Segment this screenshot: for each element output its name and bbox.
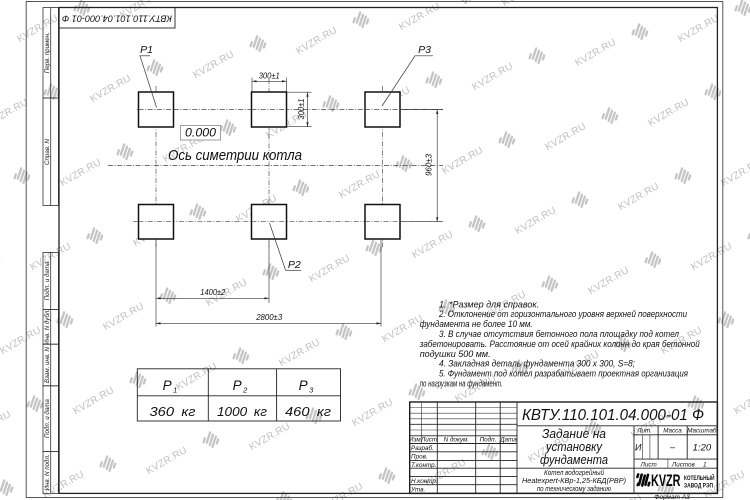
svg-text:KVZR.RU: KVZR.RU (191, 49, 236, 81)
svg-text:Ось симетрии котла: Ось симетрии котла (168, 148, 302, 164)
svg-text:1. *Размер для справок.: 1. *Размер для справок. (439, 299, 539, 309)
svg-text:4. Закладная деталь фундамент: 4. Закладная деталь фундамента 300 x 300… (439, 359, 635, 369)
svg-text:KVZR.RU: KVZR.RU (616, 181, 661, 213)
svg-text:подушки 500 мм.: подушки 500 мм. (420, 349, 491, 359)
svg-text:KVZR.RU: KVZR.RU (380, 313, 425, 345)
svg-text:KVZR.RU: KVZR.RU (144, 445, 189, 477)
svg-text:KVZR.RU: KVZR.RU (513, 205, 558, 237)
svg-text:KVZR.RU: KVZR.RU (410, 229, 455, 261)
svg-text:Т.контр.: Т.контр. (411, 462, 436, 469)
svg-text:фундамента не более 10 мм.: фундамента не более 10 мм. (420, 319, 533, 329)
svg-text:KVZR.RU: KVZR.RU (646, 97, 691, 129)
svg-text:P3: P3 (299, 378, 315, 395)
svg-text:P2: P2 (233, 378, 249, 395)
svg-text:1000 кг: 1000 кг (217, 404, 268, 419)
svg-text:Листов: Листов (671, 461, 696, 468)
svg-text:KVZR.RU: KVZR.RU (277, 337, 322, 369)
svg-text:KVZR.RU: KVZR.RU (58, 157, 103, 189)
svg-text:Heatexpert-КВр-1,25-КБД(РВР): Heatexpert-КВр-1,25-КБД(РВР) (522, 478, 626, 485)
svg-text:КВТУ.110.101.04.000-01 Ф: КВТУ.110.101.04.000-01 Ф (61, 13, 172, 24)
svg-text:KVZR.RU: KVZR.RU (573, 37, 618, 69)
svg-text:Инв. N дубл.: Инв. N дубл. (44, 309, 51, 345)
svg-text:1:20: 1:20 (693, 443, 712, 454)
svg-text:Подп. и дата: Подп. и дата (44, 261, 51, 300)
svg-text:P3: P3 (418, 44, 431, 56)
svg-text:Н.контр.: Н.контр. (411, 478, 438, 485)
svg-text:P1: P1 (140, 44, 153, 56)
svg-text:КВТУ.110.101.04.000-01 Ф: КВТУ.110.101.04.000-01 Ф (522, 407, 704, 424)
svg-text:Формат А3: Формат А3 (654, 494, 690, 500)
svg-text:3. В случае отсутствия бетонн: 3. В случае отсутствия бетонного пола пл… (439, 329, 679, 339)
svg-text:KVZR.RU: KVZR.RU (350, 397, 395, 429)
svg-text:2800±3: 2800±3 (255, 312, 282, 322)
svg-text:KVZR.RU: KVZR.RU (247, 421, 292, 453)
svg-text:KVZR.RU: KVZR.RU (0, 409, 13, 441)
svg-text:Подп.: Подп. (480, 436, 497, 444)
svg-text:KVZR.RU: KVZR.RU (307, 253, 352, 285)
svg-text:Лист: Лист (420, 437, 437, 444)
svg-text:300±1: 300±1 (296, 98, 306, 119)
svg-text:Утв.: Утв. (410, 486, 425, 493)
svg-text:KVZR.RU: KVZR.RU (689, 241, 734, 273)
svg-text:KVZR.RU: KVZR.RU (440, 145, 485, 177)
svg-text:Масса: Масса (663, 428, 682, 435)
svg-text:KVZR.RU: KVZR.RU (101, 301, 146, 333)
svg-text:установку: установку (545, 440, 603, 454)
svg-text:1400±2: 1400±2 (200, 287, 225, 297)
svg-text:фундамента: фундамента (540, 453, 608, 467)
svg-text:KVZR.RU: KVZR.RU (470, 61, 515, 93)
svg-text:забетонировать. Расстояние от: забетонировать. Расстояние от осей крайн… (419, 339, 700, 349)
svg-text:P1: P1 (163, 378, 178, 395)
svg-text:KVZR: KVZR (651, 471, 681, 490)
svg-text:Задание на: Задание на (542, 427, 606, 441)
svg-text:KVZR.RU: KVZR.RU (15, 13, 60, 45)
svg-text:KVZR.RU: KVZR.RU (337, 169, 382, 201)
svg-text:KVZR.RU: KVZR.RU (676, 13, 721, 45)
svg-text:Дата: Дата (499, 437, 517, 444)
svg-text:Справ. N: Справ. N (44, 139, 51, 165)
svg-text:960±3: 960±3 (424, 154, 434, 176)
svg-text:Инв. N подл.: Инв. N подл. (44, 454, 51, 490)
svg-text:KVZR.RU: KVZR.RU (71, 385, 116, 417)
svg-text:2. Отклонение от горизонтальн: 2. Отклонение от горизонтального уровня … (438, 309, 687, 319)
svg-text:KVZR.RU: KVZR.RU (0, 325, 43, 357)
svg-text:KVZR.RU: KVZR.RU (586, 265, 631, 297)
svg-text:300±1: 300±1 (259, 70, 280, 80)
svg-text:Лист: Лист (640, 461, 657, 468)
svg-text:KVZR.RU: KVZR.RU (732, 385, 750, 417)
svg-text:P2: P2 (288, 259, 301, 271)
svg-text:5. Фундамент под котел разраб: 5. Фундамент под котел разрабатывает про… (439, 369, 688, 379)
svg-text:Масштаб: Масштаб (687, 427, 717, 435)
svg-text:KVZR.RU: KVZR.RU (88, 73, 133, 105)
svg-text:Взам. инв. N: Взам. инв. N (44, 346, 51, 383)
svg-text:Перв. примен.: Перв. примен. (44, 32, 51, 73)
svg-text:360 кг: 360 кг (150, 404, 197, 419)
svg-text:460 кг: 460 кг (285, 404, 332, 419)
svg-text:KVZR.RU: KVZR.RU (294, 25, 339, 57)
svg-text:Разраб.: Разраб. (411, 444, 434, 452)
svg-text:KVZR.RU: KVZR.RU (543, 121, 588, 153)
svg-text:по техническому заданию: по техническому заданию (537, 485, 612, 493)
svg-text:N докум.: N докум. (444, 436, 469, 444)
svg-text:KVZR.RU: KVZR.RU (0, 97, 30, 129)
svg-text:0.000: 0.000 (185, 126, 216, 140)
svg-text:КОТЕЛЬНЫЙ: КОТЕЛЬНЫЙ (684, 474, 715, 482)
svg-text:1: 1 (703, 461, 707, 468)
svg-text:ЗАВОД РЭП: ЗАВОД РЭП (684, 484, 713, 490)
svg-text:Котел водогрейный: Котел водогрейный (544, 469, 604, 477)
svg-text:KVZR.RU: KVZR.RU (397, 1, 442, 33)
svg-text:Лит.: Лит. (636, 428, 652, 435)
svg-text:KVZR.RU: KVZR.RU (719, 157, 750, 189)
svg-text:KVZR.RU: KVZR.RU (174, 361, 219, 393)
svg-text:Подп. и дата: Подп. и дата (44, 399, 51, 438)
svg-text:И: И (635, 443, 642, 453)
svg-text:по нагрузкам на фундамент.: по нагрузкам на фундамент. (420, 379, 503, 389)
svg-text:Пров.: Пров. (411, 454, 428, 461)
svg-text:–: – (669, 442, 676, 452)
